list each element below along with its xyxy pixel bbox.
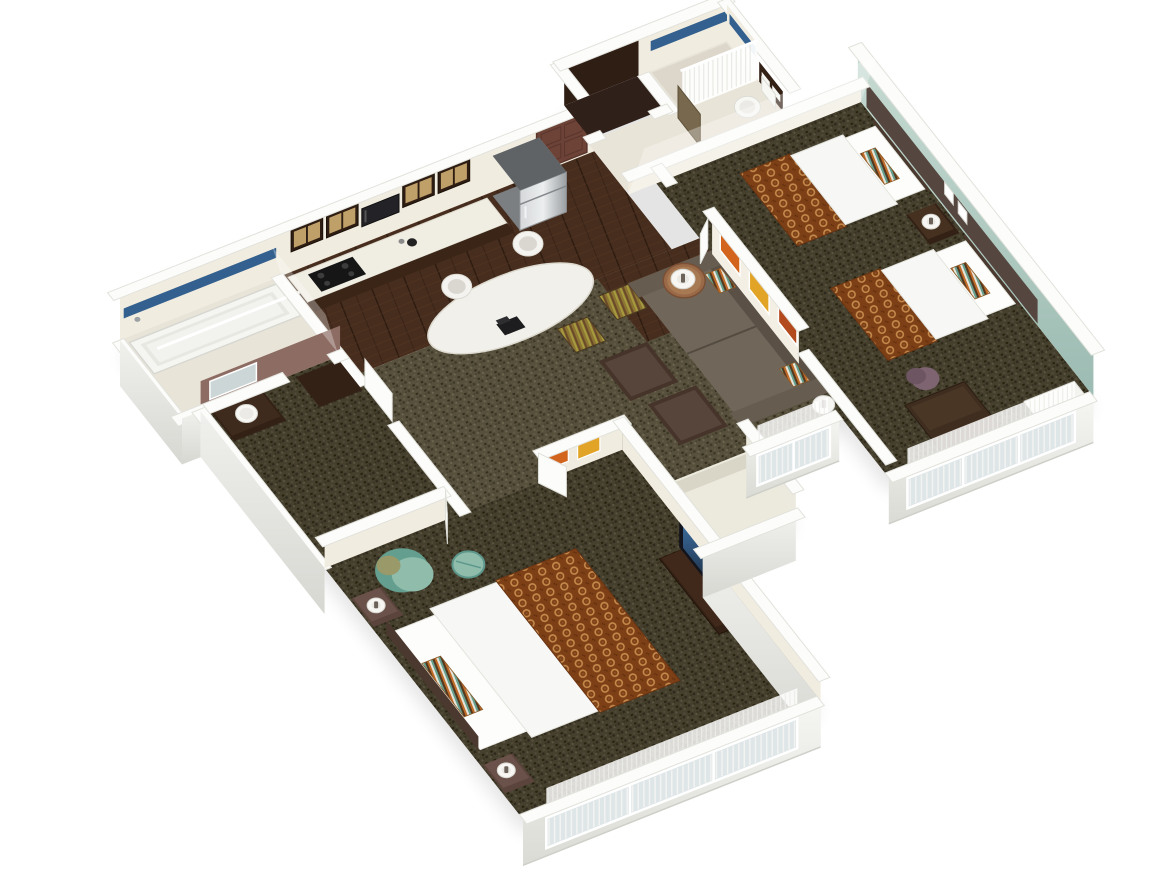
teal-ottoman [452, 551, 484, 577]
table-lamp [367, 598, 385, 613]
table-lamp [497, 763, 515, 778]
floorplan-stage: 3D isometric floor plan — two-bedroom ho… [0, 0, 1160, 870]
table-lamp [671, 269, 695, 289]
table-lamp [922, 214, 940, 229]
floorplan-3d-render [0, 0, 1160, 870]
vanity-sink [236, 405, 258, 423]
